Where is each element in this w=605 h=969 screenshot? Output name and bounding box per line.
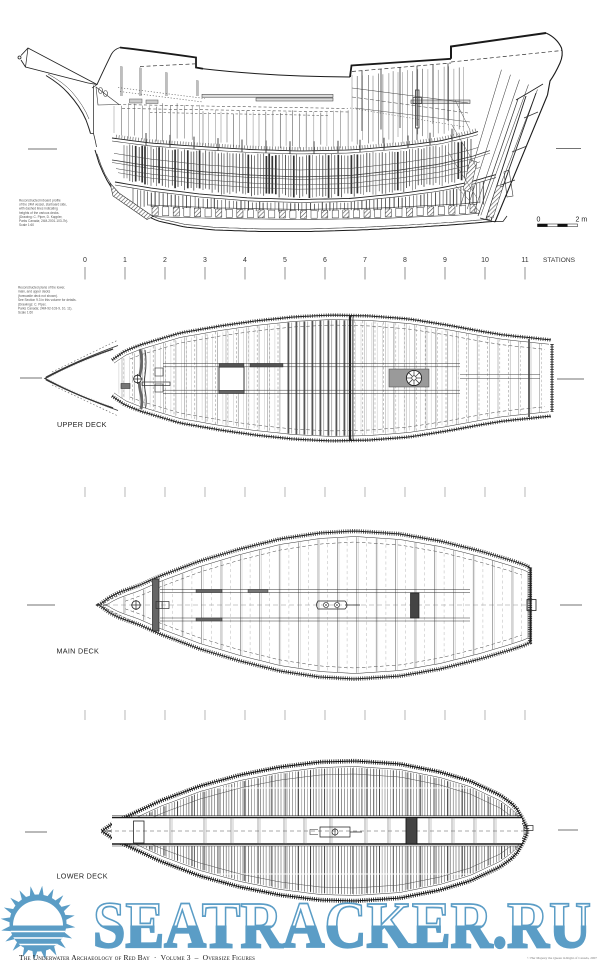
svg-text:2: 2	[163, 257, 167, 264]
svg-text:The Underwater Archaeology of: The Underwater Archaeology of Red Bay · …	[19, 953, 255, 962]
svg-text:0: 0	[83, 257, 87, 264]
svg-text:0: 0	[537, 217, 541, 224]
svg-text:2 m: 2 m	[576, 217, 588, 224]
svg-text:5: 5	[283, 257, 287, 264]
svg-text:6: 6	[323, 257, 327, 264]
svg-text:8: 8	[403, 257, 407, 264]
svg-text:11: 11	[521, 257, 528, 264]
svg-text:MAIN DECK: MAIN DECK	[57, 647, 100, 656]
svg-text:3: 3	[203, 257, 207, 264]
svg-text:4: 4	[243, 257, 247, 264]
svg-text:9: 9	[443, 257, 447, 264]
svg-text:LOWER DECK: LOWER DECK	[57, 872, 108, 881]
svg-text:STATIONS: STATIONS	[543, 257, 576, 264]
svg-text:UPPER DECK: UPPER DECK	[57, 420, 107, 429]
svg-text:10: 10	[481, 257, 489, 264]
svg-text:Scale 1:60: Scale 1:60	[18, 311, 33, 315]
svg-text:7: 7	[363, 257, 367, 264]
svg-text:Scale 1:60: Scale 1:60	[19, 223, 34, 227]
svg-text:1: 1	[123, 257, 127, 264]
